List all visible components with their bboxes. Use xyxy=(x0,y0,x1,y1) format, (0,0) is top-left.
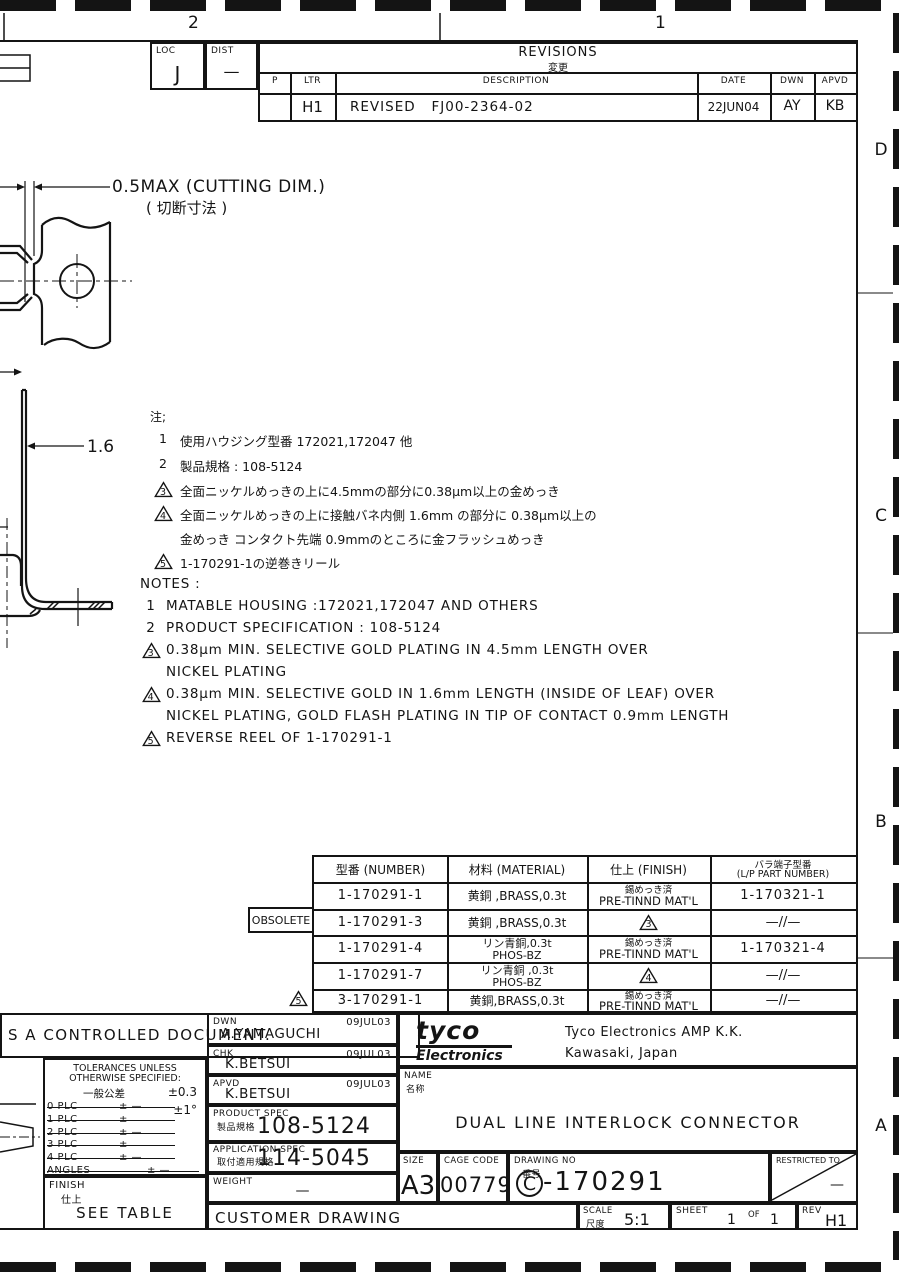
weight-box: WEIGHT — xyxy=(207,1173,398,1203)
part-lp-ditto: —//— xyxy=(710,962,856,989)
part-number: 1-170291-7 xyxy=(314,962,447,989)
part-finish-en: PRE-TINND MAT'L xyxy=(587,948,710,960)
drawing-no-box: DRAWING NO 番号 C-170291 xyxy=(508,1152,770,1203)
part-material: 黄銅,BRASS,0.3t xyxy=(447,989,587,1011)
border-dashes-top xyxy=(0,0,900,11)
drawing-no-label: DRAWING NO xyxy=(514,1156,576,1166)
col-finish: 仕上 (FINISH) xyxy=(587,857,710,882)
revision-triangle-icon: 3 xyxy=(142,642,161,659)
revision-triangle-icon: 4 xyxy=(154,505,173,522)
dist-label: DIST xyxy=(211,46,234,56)
application-spec-box: APPLICATION SPEC 取付適用規格 114-5045 xyxy=(207,1142,398,1173)
note-jp-2: 2 製品規格 : 108-5124 xyxy=(150,456,770,481)
apvd-name: K.BETSUI xyxy=(225,1086,291,1102)
note-en-5: 5 REVERSE REEL OF 1-170291-1 xyxy=(140,730,880,752)
rev-row-date: 22JUN04 xyxy=(697,100,770,114)
notes-japanese: 注; 1 使用ハウジング型番 172021,172047 他 2 製品規格 : … xyxy=(150,408,770,577)
zone-letter-d: D xyxy=(871,140,891,160)
section-hatching xyxy=(30,602,105,614)
dim-cutting-text: 0.5MAX (CUTTING DIM.) xyxy=(112,177,325,197)
dwn-box: DWN 09JUL03 A.YAMAGUCHI xyxy=(207,1013,398,1045)
contact-section-outline xyxy=(0,390,112,616)
part-number: 1-170291-1 xyxy=(314,882,447,909)
part-lp-ditto: —//— xyxy=(710,909,856,935)
note-marker: 2 xyxy=(150,456,176,471)
sheet-of: OF xyxy=(748,1210,760,1220)
rev-label: REV xyxy=(802,1206,822,1216)
rev-col-description: DESCRIPTION xyxy=(335,76,697,86)
size-value: A3 xyxy=(400,1173,436,1199)
apvd-box: APVD 09JUL03 K.BETSUI xyxy=(207,1075,398,1105)
notes-jp-heading: 注; xyxy=(150,408,770,425)
rev-row-apvd: KB xyxy=(814,98,856,114)
restricted-to-value: — xyxy=(830,1177,844,1193)
note-en-4: 4 0.38μm MIN. SELECTIVE GOLD IN 1.6mm LE… xyxy=(140,686,880,708)
obsolete-box: OBSOLETE xyxy=(248,907,314,933)
dist-value: — xyxy=(207,62,256,81)
revision-triangle-icon: 5 xyxy=(142,730,161,747)
dim-cutting-jp-text: ( 切断寸法 ) xyxy=(146,199,227,217)
scale-box: SCALE 尺度 5:1 xyxy=(578,1203,670,1230)
chk-name: K.BETSUI xyxy=(225,1056,291,1072)
plc-row: 1 PLC± xyxy=(47,1114,175,1127)
projection-symbol xyxy=(0,1104,40,1152)
tolerances-line2: OTHERWISE SPECIFIED: xyxy=(45,1073,205,1084)
dwn-date: 09JUL03 xyxy=(346,1017,391,1028)
notes-english: NOTES : 1 MATABLE HOUSING :172021,172047… xyxy=(140,576,880,752)
dist-box: DIST — xyxy=(205,42,258,90)
application-spec-value: 114-5045 xyxy=(257,1146,371,1171)
part-material: 黄銅 ,BRASS,0.3t xyxy=(447,882,587,909)
chk-date: 09JUL03 xyxy=(346,1049,391,1060)
product-spec-value: 108-5124 xyxy=(257,1114,371,1139)
tolerance-linear: ±0.3 xyxy=(168,1085,197,1099)
part-material: リン青銅,0.3t xyxy=(447,937,587,949)
tyco-logo-electronics: Electronics xyxy=(416,1048,512,1065)
finish-label: FINISH xyxy=(49,1180,85,1191)
part-number: 3-170291-1 xyxy=(314,989,447,1011)
part-material-2: PHOS-BZ xyxy=(447,949,587,961)
restricted-to-label: RESTRICTED TO xyxy=(776,1156,840,1165)
rev-col-p: P xyxy=(260,76,290,86)
zone-letter-c: C xyxy=(871,506,891,526)
tolerances-general-jp: 一般公差 xyxy=(83,1086,125,1101)
circled-c-prefix: C xyxy=(516,1170,543,1197)
border-dashes-bottom xyxy=(0,1262,900,1272)
revisions-title: REVISIONS xyxy=(260,45,856,60)
cage-code-value: 00779 xyxy=(440,1175,506,1196)
cage-code-box: CAGE CODE 00779 xyxy=(438,1152,508,1203)
customer-drawing-box: CUSTOMER DRAWING xyxy=(207,1203,578,1230)
col-lp-1: バラ端子型番 xyxy=(710,858,856,869)
weight-value: — xyxy=(209,1183,396,1199)
cutting-dim-arrows xyxy=(17,184,42,191)
zone-letter-b: B xyxy=(871,812,891,832)
name-label-jp: 名称 xyxy=(406,1082,425,1095)
cutting-dim-lines xyxy=(0,181,110,302)
col-material: 材料 (MATERIAL) xyxy=(447,857,587,882)
rev-col-ltr: LTR xyxy=(290,76,335,86)
revision-triangle-icon: 3 xyxy=(154,481,173,498)
plc-row: 0 PLC± — xyxy=(47,1101,175,1114)
zone-letter-a: A xyxy=(871,1116,891,1136)
rev-box: REV H1 xyxy=(797,1203,858,1230)
size-box: SIZE A3 xyxy=(398,1152,438,1203)
size-label: SIZE xyxy=(403,1156,424,1166)
zone-ticks-top xyxy=(4,13,440,40)
finish-box: FINISH 仕上 SEE TABLE xyxy=(43,1176,207,1230)
rev-col-date: DATE xyxy=(697,76,770,86)
tolerances-box: TOLERANCES UNLESS OTHERWISE SPECIFIED: 一… xyxy=(43,1058,207,1176)
col-number: 型番 (NUMBER) xyxy=(314,857,447,882)
part-lp-ditto: —//— xyxy=(710,989,856,1011)
sheet-total: 1 xyxy=(770,1212,779,1228)
partial-border-box xyxy=(0,55,30,81)
part-material: リン青銅 ,0.3t xyxy=(447,964,587,976)
loc-box: LOC J xyxy=(150,42,205,90)
plc-row: 3 PLC± xyxy=(47,1139,175,1152)
note-en-2: 2 PRODUCT SPECIFICATION : 108-5124 xyxy=(140,620,880,642)
col-lp-2: (L/P PART NUMBER) xyxy=(710,869,856,880)
loc-value: J xyxy=(152,62,203,86)
note-en-3-cont: NICKEL PLATING xyxy=(140,664,880,686)
tyco-logo-word: tyco xyxy=(416,1018,512,1043)
scale-label: SCALE xyxy=(583,1206,613,1216)
zone-number-2: 2 xyxy=(188,13,199,33)
note-marker: 2 xyxy=(140,620,162,636)
part-finish-en: PRE-TINND MAT'L xyxy=(587,1000,710,1011)
note-jp-1: 1 使用ハウジング型番 172021,172047 他 xyxy=(150,431,770,456)
centerlines-top-view xyxy=(0,254,132,308)
row5-triangle-marker: 5 xyxy=(289,989,308,1008)
drawing-number: C-170291 xyxy=(516,1167,666,1197)
dwn-name: A.YAMAGUCHI xyxy=(221,1026,321,1042)
notes-en-heading: NOTES : xyxy=(140,576,880,592)
leaf-dim-arrows xyxy=(14,369,35,450)
company-name: Tyco Electronics AMP K.K. xyxy=(565,1025,743,1040)
plc-row: 2 PLC± — xyxy=(47,1127,175,1140)
tyco-logo: tyco Electronics xyxy=(416,1018,512,1065)
revision-triangle-icon: 4 xyxy=(142,686,161,703)
scale-label-jp: 尺度 xyxy=(586,1217,605,1230)
part-finish-jp: 錫めっき済 xyxy=(587,937,710,947)
part-lp: 1-170321-4 xyxy=(710,935,856,962)
rev-col-apvd: APVD xyxy=(814,76,856,86)
company-location: Kawasaki, Japan xyxy=(565,1046,678,1061)
rev-row-dwn: AY xyxy=(770,98,814,114)
sheet-label: SHEET xyxy=(676,1206,708,1216)
part-lp: 1-170321-1 xyxy=(710,882,856,909)
leaf-dim-lines xyxy=(0,372,84,626)
part-number: 1-170291-4 xyxy=(314,935,447,962)
drawing-title: DUAL LINE INTERLOCK CONNECTOR xyxy=(400,1113,856,1132)
name-box: NAME 名称 DUAL LINE INTERLOCK CONNECTOR xyxy=(398,1067,858,1152)
rev-row-description: REVISED FJ00-2364-02 xyxy=(350,99,534,115)
note-jp-4: 4 全面ニッケルめっきの上に接触バネ内側 1.6mm の部分に 0.38μm以上… xyxy=(150,505,770,529)
restricted-to-box: RESTRICTED TO — xyxy=(770,1152,858,1203)
zone-number-1: 1 xyxy=(655,13,666,33)
scale-value: 5:1 xyxy=(624,1210,650,1229)
note-en-3: 3 0.38μm MIN. SELECTIVE GOLD PLATING IN … xyxy=(140,642,880,664)
note-en-4-cont: NICKEL PLATING, GOLD FLASH PLATING IN TI… xyxy=(140,708,880,730)
chk-box: CHK 09JUL03 K.BETSUI xyxy=(207,1045,398,1075)
tolerance-angle: ±1° xyxy=(173,1103,197,1117)
rev-row-ltr: H1 xyxy=(290,98,335,116)
pilot-hole xyxy=(60,264,94,298)
note-jp-3: 3 全面ニッケルめっきの上に4.5mmの部分に0.38μm以上の金めっき xyxy=(150,481,770,505)
rev-value: H1 xyxy=(825,1211,847,1230)
terminal-fragment xyxy=(0,246,32,310)
product-spec-box: PRODUCT SPEC 製品規格 108-5124 xyxy=(207,1105,398,1142)
part-material: 黄銅 ,BRASS,0.3t xyxy=(447,909,587,935)
customer-drawing-text: CUSTOMER DRAWING xyxy=(215,1209,401,1227)
note-en-1: 1 MATABLE HOUSING :172021,172047 AND OTH… xyxy=(140,598,880,620)
note-jp-4-cont: 金めっき コンタクト先端 0.9mmのところに金フラッシュめっき xyxy=(150,529,770,553)
parts-table: 型番 (NUMBER) 材料 (MATERIAL) 仕上 (FINISH) バラ… xyxy=(312,855,858,1013)
border-dashes-right xyxy=(893,13,899,1260)
plc-row: 4 PLC± — xyxy=(47,1152,175,1165)
finish-value: SEE TABLE xyxy=(45,1204,205,1222)
part-finish-en: PRE-TINND MAT'L xyxy=(587,895,710,907)
sheet-box: SHEET 1 OF 1 xyxy=(670,1203,797,1230)
company-box: tyco Electronics Tyco Electronics AMP K.… xyxy=(398,1013,858,1067)
part-finish-jp: 錫めっき済 xyxy=(587,884,710,894)
product-spec-label-jp: 製品規格 xyxy=(217,1120,255,1133)
loc-label: LOC xyxy=(156,46,176,56)
revision-triangle-icon: 5 xyxy=(289,990,308,1007)
rev-col-dwn: DWN xyxy=(770,76,814,86)
note-jp-5: 5 1-170291-1の逆巻きリール xyxy=(150,553,770,577)
plc-rows: 0 PLC± — 1 PLC± 2 PLC± — 3 PLC± 4 PLC± —… xyxy=(47,1101,175,1178)
note-marker: 1 xyxy=(150,431,176,446)
sheet-num: 1 xyxy=(727,1212,736,1228)
engineering-drawing-sheet: 2 1 D C B A LOC J DIST — REVISIONS 変更 P … xyxy=(0,0,900,1272)
cage-code-label: CAGE CODE xyxy=(444,1156,499,1166)
revision-triangle-icon: 4 xyxy=(639,967,658,984)
dim-leaf-text: 1.6 xyxy=(87,437,114,457)
apvd-date: 09JUL03 xyxy=(346,1079,391,1090)
revisions-table: REVISIONS 変更 P LTR DESCRIPTION DATE DWN … xyxy=(258,42,858,122)
note-marker: 1 xyxy=(140,598,162,614)
name-label: NAME xyxy=(404,1071,432,1081)
revision-triangle-icon: 3 xyxy=(639,914,658,931)
revision-triangle-icon: 5 xyxy=(154,553,173,570)
carrier-strip-outline xyxy=(0,218,110,348)
part-material-2: PHOS-BZ xyxy=(447,976,587,988)
part-number: 1-170291-3 xyxy=(314,909,447,935)
